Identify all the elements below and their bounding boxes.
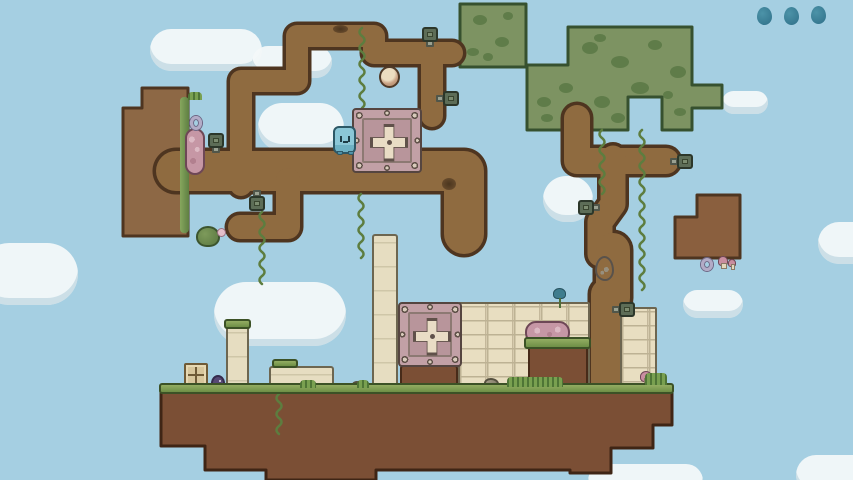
game-viewport[interactable] [0,0,853,480]
menu-dot[interactable] [811,6,826,24]
menu-dot[interactable] [757,7,772,25]
hud-layer [0,0,853,480]
menu-dot[interactable] [784,7,799,25]
